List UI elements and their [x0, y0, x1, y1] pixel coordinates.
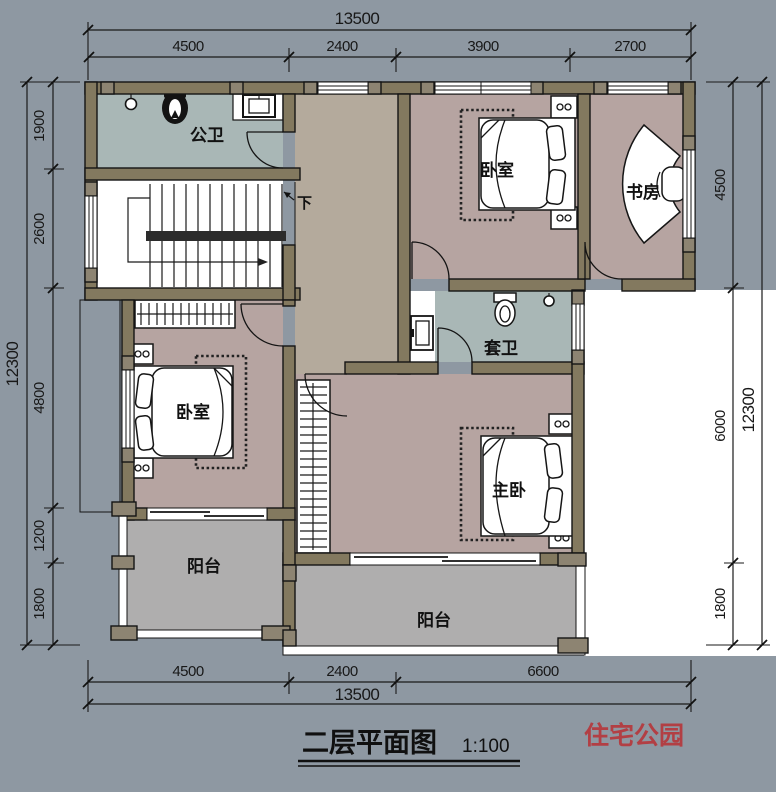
wall-master-north: [345, 362, 438, 374]
dim-left-total: 12300: [3, 342, 22, 387]
pier: [101, 82, 114, 94]
wall-topblock-south: [449, 279, 585, 291]
pier: [283, 565, 296, 581]
dim-top-segment-1: 2400: [326, 38, 358, 55]
pier: [85, 182, 97, 196]
wall-master-north: [472, 362, 584, 374]
dim-right-segment-1: 6000: [712, 410, 729, 442]
floorplan-page: 公卫 卧室 书房 套卫 卧室 主卧 阳台 阳台 下 13500 4500 240…: [0, 0, 776, 792]
dim-bottom-segment-0: 4500: [172, 663, 204, 680]
drawing-scale: 1:100: [462, 736, 510, 757]
pier: [122, 356, 134, 370]
pier: [683, 136, 695, 150]
wall-hall-bedroom: [398, 94, 410, 374]
pier: [558, 638, 588, 653]
watermark-text: 住宅公园: [584, 721, 684, 750]
window-ensuite-east: [572, 304, 584, 350]
floorplan-canvas: 公卫 卧室 书房 套卫 卧室 主卧 阳台 阳台 下 13500 4500 240…: [0, 0, 776, 792]
pier: [683, 238, 695, 252]
floor-drain-icon: [126, 99, 137, 110]
pier: [304, 82, 317, 94]
room-label-bedroom-left: 卧室: [176, 402, 210, 422]
pillow: [544, 487, 563, 523]
sliding-door-master: [350, 553, 540, 565]
room-label-study: 书房: [626, 182, 660, 202]
pier: [368, 82, 381, 94]
dim-bottom-total: 13500: [335, 685, 380, 704]
nightstand: [549, 414, 575, 434]
pier: [112, 502, 136, 516]
pier: [283, 630, 296, 646]
pier: [668, 82, 681, 94]
stair-down-label: 下: [297, 195, 312, 212]
window-stairs-west: [85, 196, 97, 268]
dim-right-total: 12300: [739, 388, 758, 433]
pier: [111, 626, 137, 640]
room-label-balcony-left: 阳台: [187, 556, 221, 576]
wall-topblock-south: [622, 279, 695, 291]
railing-left-balcony-west: [119, 512, 127, 638]
pier: [122, 448, 134, 462]
wall-connector: [283, 520, 295, 565]
window-study-east: [683, 150, 695, 238]
wall-bedroomleft-east: [283, 346, 295, 520]
dim-left-segment-2: 4800: [31, 382, 48, 414]
pillow: [546, 125, 566, 161]
cutout-right: [584, 290, 776, 656]
room-label-ensuite-bath: 套卫: [483, 338, 518, 358]
hall-floor: [295, 94, 398, 374]
sliding-door-bedroomleft: [147, 508, 267, 520]
pillow: [135, 373, 154, 409]
dim-top-segment-2: 3900: [467, 38, 499, 55]
drawing-title: 二层平面图: [302, 728, 437, 758]
wall-stair-south: [85, 288, 300, 300]
pier: [572, 291, 584, 305]
railing-bottom-balcony-east: [576, 565, 585, 646]
wall-bath-south: [85, 168, 300, 180]
room-label-master-bedroom: 主卧: [492, 480, 526, 500]
dim-right-segment-0: 4500: [712, 169, 729, 201]
room-label-public-bath: 公卫: [190, 126, 224, 145]
dim-left-segment-4: 1800: [31, 588, 48, 620]
pier: [530, 82, 543, 94]
stair-center-rail: [146, 231, 286, 241]
nightstand: [551, 96, 577, 118]
dim-left-segment-3: 1200: [31, 520, 48, 552]
dim-right-segment-2: 1800: [712, 588, 729, 620]
railing-bottom-balcony-south: [283, 646, 585, 655]
dim-top-segment-3: 2700: [614, 38, 646, 55]
room-label-bedroom-top: 卧室: [480, 160, 514, 180]
wall-bedroomleft-south: [267, 508, 295, 520]
wall-bath-east: [283, 94, 295, 132]
pier: [85, 268, 97, 282]
pillow: [546, 169, 566, 205]
pier: [558, 553, 586, 566]
pier: [112, 556, 134, 569]
pillow: [135, 415, 154, 451]
pier: [230, 82, 243, 94]
pier: [421, 82, 434, 94]
dim-left-segment-1: 2600: [31, 213, 48, 245]
wall-bedroomleft-east: [283, 300, 295, 306]
floor-balcony-left: [127, 520, 283, 632]
window-bedroom-top: [435, 82, 531, 94]
wall-bedroom-study: [578, 94, 590, 279]
window-bedroomleft-west: [122, 370, 134, 448]
room-label-balcony-bottom: 阳台: [417, 610, 451, 630]
window-study-top: [608, 82, 668, 94]
dim-bottom-segment-1: 2400: [326, 663, 358, 680]
dim-top-segment-0: 4500: [172, 38, 204, 55]
pier: [594, 82, 607, 94]
floor-hall: [295, 94, 398, 374]
pier: [572, 350, 584, 364]
window-hall-top: [318, 82, 368, 94]
floor-balcony-bottom: [295, 565, 576, 646]
pillow: [544, 443, 563, 479]
dim-left-segment-0: 1900: [31, 110, 48, 142]
floor-drain-icon: [544, 296, 554, 306]
wardrobe-hangers: [300, 387, 327, 547]
wall-hall-west-stub: [283, 245, 295, 300]
dim-top-total: 13500: [335, 9, 380, 28]
dim-bottom-segment-2: 6600: [527, 663, 559, 680]
